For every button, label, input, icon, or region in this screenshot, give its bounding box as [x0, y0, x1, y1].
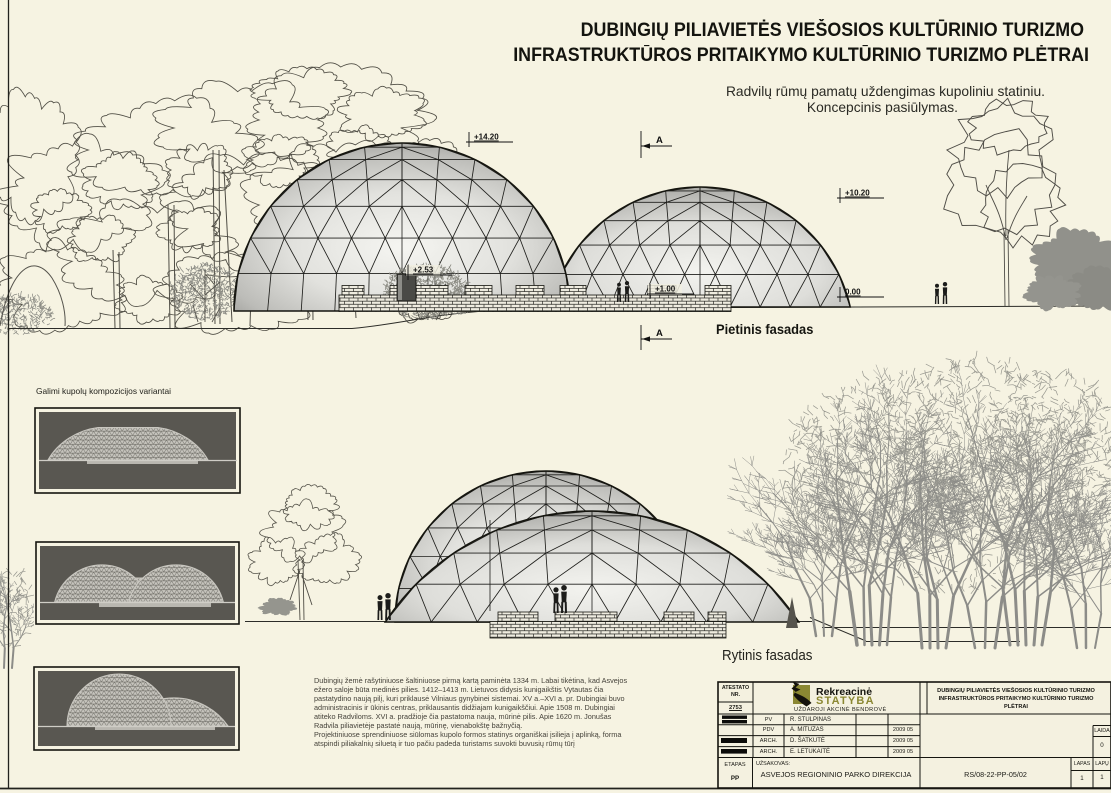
svg-text:0.00: 0.00: [845, 288, 861, 297]
svg-text:+14.20: +14.20: [474, 133, 499, 142]
svg-text:+2.53: +2.53: [413, 266, 434, 275]
svg-text:A: A: [656, 328, 663, 339]
svg-text:A: A: [656, 135, 663, 146]
svg-text:+10.20: +10.20: [845, 189, 870, 198]
svg-text:+1.00: +1.00: [655, 285, 676, 294]
